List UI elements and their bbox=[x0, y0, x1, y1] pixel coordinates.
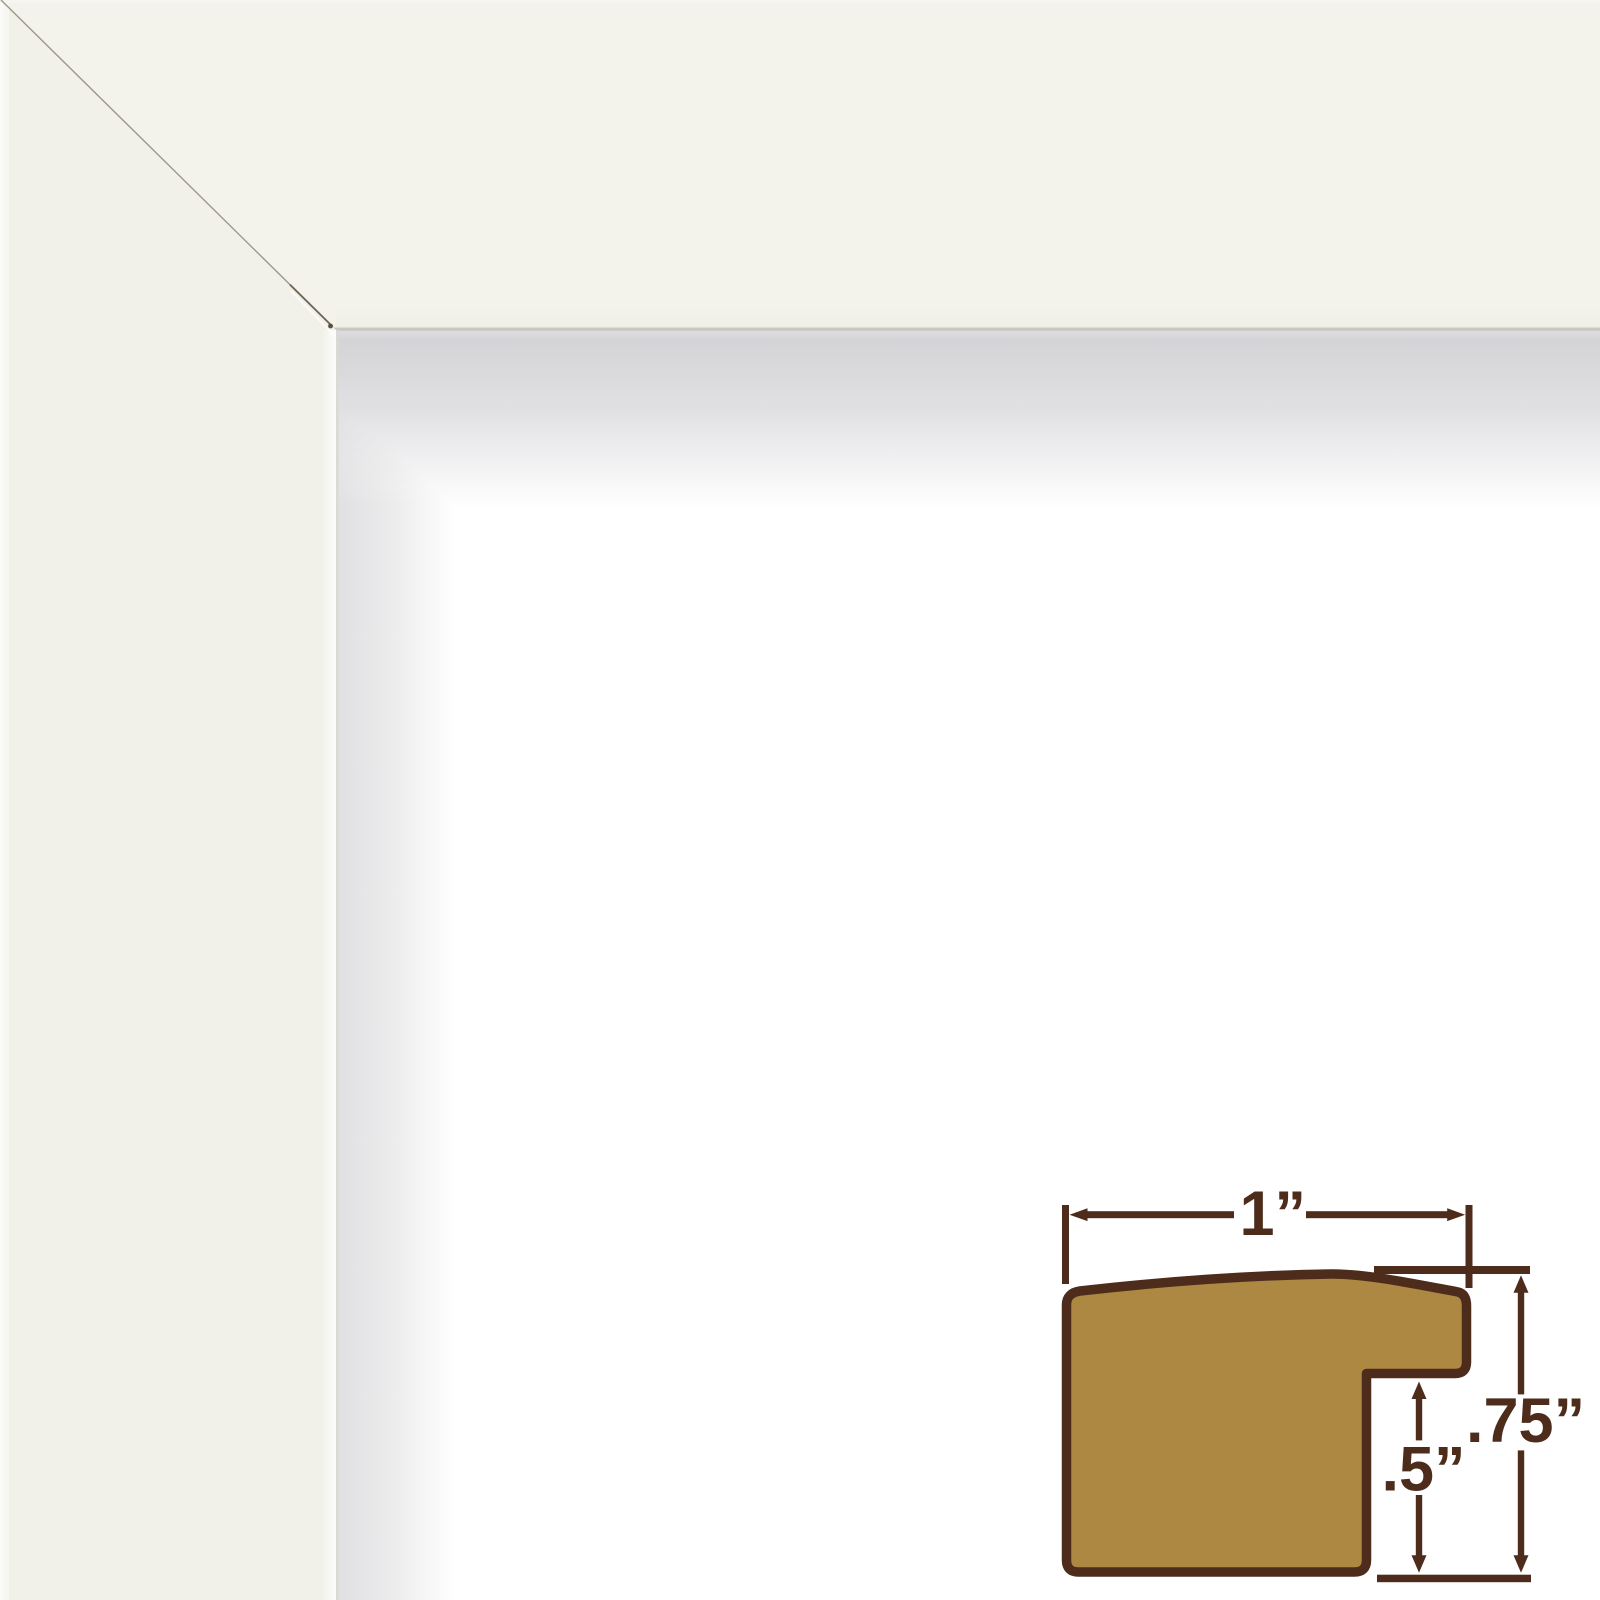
svg-text:1”: 1” bbox=[1240, 1179, 1307, 1249]
svg-text:.75”: .75” bbox=[1466, 1386, 1585, 1456]
svg-text:.5”: .5” bbox=[1382, 1435, 1466, 1505]
